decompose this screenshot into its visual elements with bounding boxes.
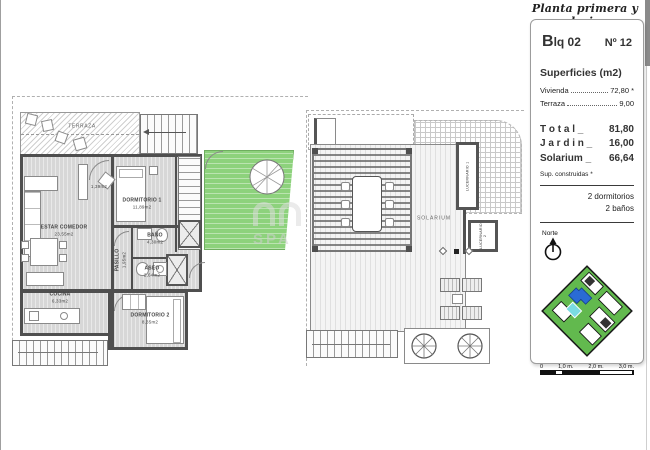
totals-block: T o t a l _ 81,80 J a r d i n _ 16,00 So… [540,123,634,167]
chair [385,218,394,227]
pergola-post [312,246,318,252]
site-minimap [539,263,635,364]
scale-segment [555,371,563,374]
pergola-post [312,148,318,154]
floorplan-sheet: TERRAZA ESTAR COMEDOR 23,55m2 COCINA 6,3… [0,0,650,450]
surface-row: Terraza 9,00 [540,98,634,111]
pillow [173,299,181,343]
total-row: Solarium _ 66,64 [540,152,634,167]
room-label-estar-comedor: ESTAR COMEDOR 23,55m2 [41,225,88,238]
nightstand [149,166,158,175]
outdoor-table [352,176,382,232]
pergola-post [406,246,412,252]
total-row: J a r d i n _ 16,00 [540,137,634,152]
north-label: Norte [542,230,634,237]
feature-dormitorios: 2 dormitorios [540,191,634,203]
chair [341,200,350,209]
wardrobe [122,294,146,310]
unit-number: Nº 12 [605,37,632,49]
page-left-edge [0,0,1,450]
staircase-lower [12,340,108,366]
surfaces-title: Superficies (m2) [540,67,634,79]
tree-icon [248,158,286,196]
planter-icon [410,332,438,360]
scale-bar-strip [540,370,634,375]
terrace-chair [41,119,54,132]
total-value: 81,80 [609,123,634,138]
scale-tick: 3,0 m. [619,364,634,370]
site-plan-icon [539,263,635,359]
surface-row: Vivienda 72,80 * [540,85,634,98]
block-row: Blq 02 Nº 12 [542,33,632,51]
sun-lounger [440,306,460,320]
side-table [452,294,463,304]
room-label-solarium: SOLARIUM [417,216,451,223]
north-block: Norte [542,230,634,261]
chair [341,218,350,227]
kitchen-island [26,272,64,286]
room-label-aseo: ASEO 2,64m2 [144,266,160,279]
page-right-edge [646,66,647,450]
scale-tick: 2,0 m. [588,364,603,370]
sun-lounger [440,278,460,292]
compass-icon [542,237,564,261]
scale-segment [563,371,571,374]
tv-cabinet [78,164,88,200]
shaft-box [178,220,201,248]
terrace-midline [21,134,139,135]
wall [111,290,188,293]
total-label: Solarium _ [540,152,591,167]
bed-1 [116,166,146,222]
sun-lounger [462,306,482,320]
dotted-leader [567,105,617,106]
pillow [119,169,143,178]
hob [29,311,39,321]
chair [385,182,394,191]
skylight-1: LUCERNARIO 1 [456,142,479,210]
sun-lounger [462,278,482,292]
dining-table [30,238,58,266]
skylight-2: LUCERNARIO 2 [468,220,498,252]
sink [60,312,68,320]
planter-icon [456,332,484,360]
chair [341,182,350,191]
stair-arrow [146,132,186,133]
scale-segment [599,371,633,374]
chair [59,254,67,262]
sofa-top [24,176,58,191]
total-label: T o t a l _ [540,123,583,138]
scale-segment [541,371,555,374]
scale-segment [571,371,599,374]
wall [175,154,177,252]
surface-value: 9,00 [619,98,634,111]
room-label-cocina: COCINA 6,33m2 [50,292,71,305]
feature-banos: 2 baños [540,203,634,215]
deck-fixture [454,249,459,254]
pergola-post [406,148,412,154]
shaft-box [166,254,188,286]
chair [21,254,29,262]
wall [131,226,133,292]
chair [59,241,67,249]
total-row: T o t a l _ 81,80 [540,123,634,138]
total-value: 16,00 [609,137,634,152]
room-label-dormitorio-2: DORMITORIO 2 8,35m2 [131,313,170,326]
total-value: 66,64 [609,152,634,167]
divider [540,222,634,223]
scale-bar: 0 1,0 m. 2,0 m. 3,0 m. [540,364,634,375]
room-label-terraza: TERRAZA [68,124,96,131]
dotted-leader [571,92,609,93]
chair [21,241,29,249]
footnote: Sup. construidas * [540,171,634,178]
info-panel: Blq 02 Nº 12 Superficies (m2) Vivienda 7… [530,19,644,364]
divider [540,185,634,186]
surface-value: 72,80 * [610,85,634,98]
chair [385,200,394,209]
block-label: Blq 02 [542,33,581,51]
room-label-dormitorio-1: DORMITORIO 1 11,89m2 [123,198,162,211]
total-label: J a r d i n _ [540,137,592,152]
scale-tick: 1,0 m. [558,364,573,370]
scale-tick: 0 [540,364,543,370]
chimney-box [314,118,336,146]
room-label-pasillo: PASILLO 1,95m2 [115,249,128,272]
stair-arrow [312,344,390,345]
surface-label: Terraza [540,98,565,111]
surface-label: Vivienda [540,85,569,98]
stair-arrow [18,352,98,353]
room-label-vestibulo: 1,39m2 [91,184,107,190]
room-label-bano: BAÑO 4,30m2 [147,233,163,246]
stair-arrow-head [143,129,149,135]
